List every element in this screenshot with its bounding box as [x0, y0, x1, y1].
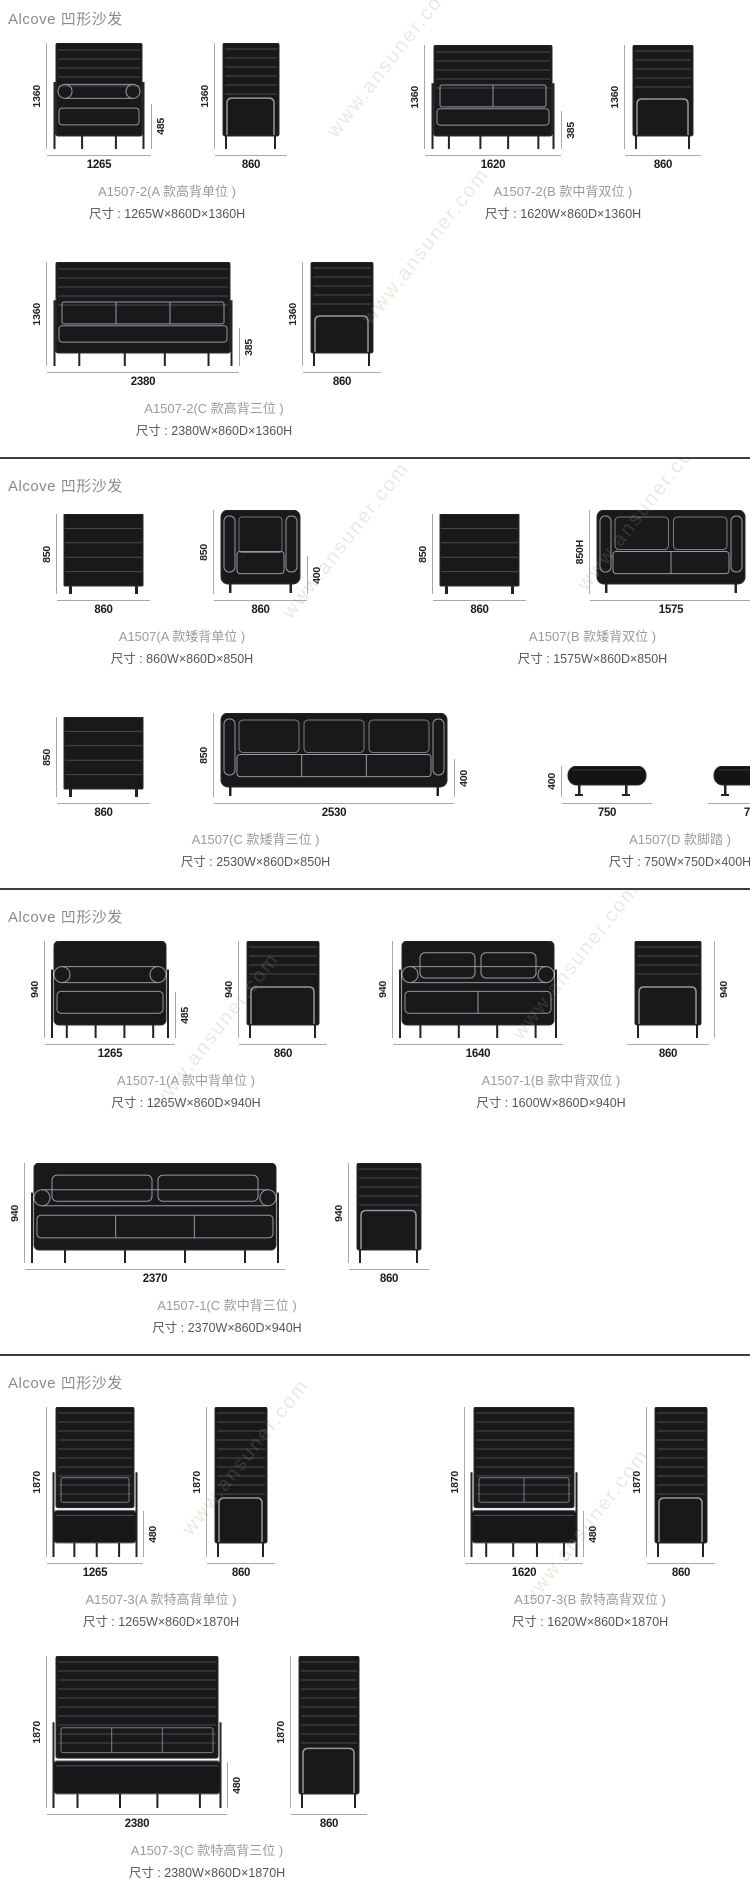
furniture-drawing [219, 713, 449, 797]
width-dimension-label: 860 [654, 159, 672, 171]
furniture-drawing [62, 514, 145, 594]
seat-height-dimension: 485 [151, 104, 167, 149]
dimension-line [227, 1762, 228, 1808]
sofa-side-view: 1360860 [604, 45, 722, 171]
sofa-side-view: 1360860 [194, 43, 308, 171]
figure-item: 400750750A1507(D 款脚踏 )尺寸 : 750W×750D×400… [541, 766, 750, 870]
section-title: Alcove 凹形沙发 [8, 475, 750, 496]
width-dimension-label: 860 [380, 1273, 398, 1285]
figure-row: 9402370940860A1507-1(C 款中背三位 )尺寸 : 2370W… [0, 1163, 750, 1336]
figure-item: 850860850860400A1507(A 款矮背单位 )尺寸 : 860W×… [36, 510, 328, 667]
furniture-drawing [220, 43, 282, 149]
figure-item: 8508608502530400A1507(C 款矮背三位 )尺寸 : 2530… [36, 713, 475, 870]
footstool-view: 400750 [541, 766, 673, 819]
model-size: 尺寸 : 2380W×860D×1360H [26, 420, 402, 439]
furniture-drawing [219, 510, 302, 594]
seat-height-dimension-label: 480 [587, 1526, 599, 1543]
sofa-front-view: 18701620480 [444, 1407, 604, 1579]
height-dimension: 940 [377, 941, 393, 1038]
figure-item: 9401265485940860A1507-1(A 款中背单位 )尺寸 : 12… [24, 941, 348, 1111]
model-size: 尺寸 : 1265W×860D×1870H [26, 1611, 296, 1630]
model-size: 尺寸 : 2380W×860D×1870H [26, 1862, 388, 1881]
figure-row: 850860850860400A1507(A 款矮背单位 )尺寸 : 860W×… [0, 510, 750, 667]
figure-item: 9401640860940A1507-1(B 款中背双位 )尺寸 : 1600W… [372, 941, 730, 1111]
furniture-drawing [52, 43, 146, 149]
height-dimension-label: 850 [41, 749, 53, 766]
sofa-back-view: 850860 [412, 514, 547, 616]
width-dimension-label: 860 [672, 1567, 690, 1579]
seat-height-dimension-label: 485 [179, 1007, 191, 1024]
height-dimension-label: 1870 [191, 1471, 203, 1494]
dimension-line [47, 155, 151, 156]
height-dimension: 940 [714, 941, 730, 1038]
width-dimension: 860 [215, 155, 287, 171]
sofa-back-view: 850860 [36, 717, 171, 819]
figure-row: 8508608502530400A1507(C 款矮背三位 )尺寸 : 2530… [0, 713, 750, 870]
furniture-drawing [632, 941, 704, 1038]
furniture-drawing [52, 262, 234, 366]
height-dimension: 940 [29, 941, 45, 1038]
height-dimension: 1360 [31, 43, 47, 149]
height-dimension-label: 940 [9, 1205, 21, 1222]
width-dimension: 2380 [47, 372, 239, 388]
sofa-front-view: 18702380480 [26, 1656, 248, 1830]
height-dimension-label: 1870 [31, 1471, 43, 1494]
model-name: A1507-2(C 款高背三位 ) [26, 398, 402, 417]
width-dimension-label: 2380 [125, 1818, 149, 1830]
width-dimension-label: 860 [659, 1048, 677, 1060]
figure-item: 136023803851360860A1507-2(C 款高背三位 )尺寸 : … [26, 262, 402, 439]
furniture-drawing [430, 45, 556, 149]
figure-row: 136012654851360860A1507-2(A 款高背单位 )尺寸 : … [0, 43, 750, 222]
height-dimension: 850 [198, 510, 214, 594]
sofa-front-view: 18701265480 [26, 1407, 164, 1579]
dimension-line [57, 803, 150, 804]
height-dimension-label: 1360 [199, 85, 211, 108]
height-dimension: 850 [41, 717, 57, 797]
figure-item: 187016204801870860A1507-3(B 款特高背双位 )尺寸 :… [444, 1407, 736, 1630]
width-dimension-label: 860 [470, 604, 488, 616]
furniture-drawing [595, 510, 747, 594]
height-dimension-label: 850 [417, 546, 429, 563]
dimension-line [454, 759, 455, 797]
dimension-line [214, 803, 454, 804]
figure-row: 136023803851360860A1507-2(C 款高背三位 )尺寸 : … [0, 262, 750, 439]
sofa-front-view: 9401265485 [24, 941, 196, 1060]
width-dimension: 860 [57, 600, 150, 616]
sofa-front-view: 9401640 [372, 941, 584, 1060]
furniture-drawing [52, 1656, 222, 1808]
seat-height-dimension: 385 [561, 111, 577, 149]
model-size: 尺寸 : 1265W×860D×940H [24, 1092, 348, 1111]
dimension-line [349, 1269, 429, 1270]
width-dimension: 1265 [47, 1563, 143, 1579]
seat-height-dimension-label: 400 [311, 567, 323, 584]
figure-row: 187012654801870860A1507-3(A 款特高背单位 )尺寸 :… [0, 1407, 750, 1630]
dimension-line [561, 111, 562, 149]
height-dimension-label: 940 [377, 981, 389, 998]
seat-height-dimension: 480 [583, 1511, 599, 1557]
width-dimension: 860 [627, 1044, 709, 1060]
height-dimension: 1360 [609, 45, 625, 149]
width-dimension: 860 [647, 1563, 715, 1579]
dimension-line [45, 1044, 175, 1045]
width-dimension: 860 [625, 155, 701, 171]
sofa-back-view: 850860 [36, 514, 171, 616]
furniture-drawing [62, 717, 145, 797]
dimension-line [393, 1044, 563, 1045]
height-dimension-label: 850 [198, 544, 210, 561]
width-dimension: 1640 [393, 1044, 563, 1060]
width-dimension: 860 [433, 600, 526, 616]
model-name: A1507-3(C 款特高背三位 ) [26, 1840, 388, 1859]
furniture-drawing [567, 766, 647, 797]
height-dimension: 1360 [287, 262, 303, 366]
width-dimension: 750 [708, 803, 750, 819]
width-dimension: 860 [239, 1044, 327, 1060]
sofa-side-view: 940860 [218, 941, 348, 1060]
dimension-line [465, 1563, 583, 1564]
width-dimension-label: 860 [94, 807, 112, 819]
sofa-front-view: 850860400 [193, 510, 328, 616]
width-dimension-label: 1620 [481, 159, 505, 171]
furniture-drawing [296, 1656, 362, 1808]
sofa-front-view: 13602380385 [26, 262, 260, 388]
width-dimension: 860 [349, 1269, 429, 1285]
width-dimension-label: 2530 [322, 807, 346, 819]
dimension-line [143, 1511, 144, 1557]
height-dimension: 400 [546, 766, 562, 797]
height-dimension-label: 1870 [631, 1471, 643, 1494]
section-title: Alcove 凹形沙发 [8, 906, 750, 927]
height-dimension: 1870 [191, 1407, 207, 1557]
model-name: A1507(C 款矮背三位 ) [36, 829, 475, 848]
model-size: 尺寸 : 2530W×860D×850H [36, 851, 475, 870]
dimension-line [425, 155, 561, 156]
height-dimension-label: 850H [574, 540, 586, 564]
figure-item: 187012654801870860A1507-3(A 款特高背单位 )尺寸 :… [26, 1407, 296, 1630]
seat-height-dimension: 385 [239, 328, 255, 366]
sofa-front-view: 13601265485 [26, 43, 172, 171]
seat-height-dimension-label: 480 [147, 1526, 159, 1543]
width-dimension-label: 860 [274, 1048, 292, 1060]
dimension-line [303, 372, 381, 373]
seat-height-dimension-label: 385 [565, 122, 577, 139]
height-dimension-label: 400 [546, 773, 558, 790]
seat-height-dimension-label: 385 [243, 339, 255, 356]
furniture-drawing [470, 1407, 578, 1557]
sofa-side-view: 1870860 [186, 1407, 296, 1579]
width-dimension-label: 860 [320, 1818, 338, 1830]
height-dimension: 1870 [631, 1407, 647, 1557]
furniture-drawing [308, 262, 376, 366]
model-name: A1507-3(A 款特高背单位 ) [26, 1589, 296, 1608]
dimension-line [47, 1563, 143, 1564]
furniture-drawing [713, 766, 750, 797]
width-dimension: 860 [207, 1563, 275, 1579]
height-dimension: 850 [417, 514, 433, 594]
spec-section: www.ansuner.comwww.ansuner.comAlcove 凹形沙… [0, 888, 750, 1354]
height-dimension: 1870 [31, 1656, 47, 1808]
width-dimension-label: 1265 [98, 1048, 122, 1060]
seat-height-dimension: 480 [227, 1762, 243, 1808]
model-name: A1507-1(A 款中背单位 ) [24, 1070, 348, 1089]
width-dimension-label: 860 [251, 604, 269, 616]
height-dimension: 1870 [275, 1656, 291, 1808]
width-dimension-label: 1265 [83, 1567, 107, 1579]
height-dimension-label: 1360 [31, 303, 43, 326]
height-dimension-label: 940 [223, 981, 235, 998]
figure-item: 9402370940860A1507-1(C 款中背三位 )尺寸 : 2370W… [4, 1163, 450, 1336]
height-dimension-label: 1360 [287, 303, 299, 326]
seat-height-dimension: 400 [307, 556, 323, 594]
seat-height-dimension-label: 485 [155, 118, 167, 135]
width-dimension: 1620 [425, 155, 561, 171]
height-dimension: 940 [223, 941, 239, 1038]
width-dimension-label: 2370 [143, 1273, 167, 1285]
model-size: 尺寸 : 750W×750D×400H [541, 851, 750, 870]
height-dimension: 850 [198, 713, 214, 797]
width-dimension-label: 860 [242, 159, 260, 171]
furniture-drawing [30, 1163, 280, 1263]
width-dimension-label: 750 [744, 807, 750, 819]
height-dimension: 940 [9, 1163, 25, 1263]
figure-row: 9401265485940860A1507-1(A 款中背单位 )尺寸 : 12… [0, 941, 750, 1111]
furniture-drawing [50, 941, 170, 1038]
dimension-line [207, 1563, 275, 1564]
height-dimension-label: 940 [718, 981, 730, 998]
model-size: 尺寸 : 860W×860D×850H [36, 648, 328, 667]
seat-height-dimension-label: 400 [458, 770, 470, 787]
height-dimension: 850 [41, 514, 57, 594]
width-dimension: 860 [303, 372, 381, 388]
figure-item: 850860850H1575400A1507(B 款矮背双位 )尺寸 : 157… [412, 510, 750, 667]
sofa-side-view: 940860 [328, 1163, 450, 1285]
width-dimension-label: 1265 [87, 159, 111, 171]
model-name: A1507-1(C 款中背三位 ) [4, 1295, 450, 1314]
height-dimension-label: 1870 [449, 1471, 461, 1494]
width-dimension: 860 [214, 600, 307, 616]
width-dimension-label: 860 [232, 1567, 250, 1579]
furniture-drawing [212, 1407, 270, 1557]
height-dimension-label: 850 [41, 546, 53, 563]
sofa-side-view: 1870860 [626, 1407, 736, 1579]
dimension-line [175, 992, 176, 1038]
dimension-line [239, 1044, 327, 1045]
height-dimension-label: 850 [198, 747, 210, 764]
height-dimension: 1360 [409, 45, 425, 149]
sofa-front-view: 850H1575400 [569, 510, 750, 616]
furniture-drawing [438, 514, 521, 594]
dimension-line [214, 600, 307, 601]
sofa-front-view: 8502530400 [193, 713, 475, 819]
model-name: A1507(A 款矮背单位 ) [36, 626, 328, 645]
height-dimension: 940 [333, 1163, 349, 1263]
furniture-drawing [630, 45, 696, 149]
model-name: A1507-1(B 款中背双位 ) [372, 1070, 730, 1089]
width-dimension-label: 1620 [512, 1567, 536, 1579]
seat-height-dimension: 400 [454, 759, 470, 797]
dimension-line [708, 803, 750, 804]
model-name: A1507-2(A 款高背单位 ) [26, 181, 308, 200]
dimension-line [151, 104, 152, 149]
height-dimension: 1360 [199, 43, 215, 149]
width-dimension: 1620 [465, 1563, 583, 1579]
model-size: 尺寸 : 1620W×860D×1870H [444, 1611, 736, 1630]
width-dimension: 2530 [214, 803, 454, 819]
model-name: A1507-3(B 款特高背双位 ) [444, 1589, 736, 1608]
dimension-line [47, 1814, 227, 1815]
section-title: Alcove 凹形沙发 [8, 1372, 750, 1393]
height-dimension-label: 1870 [31, 1721, 43, 1744]
dimension-line [57, 600, 150, 601]
width-dimension: 2380 [47, 1814, 227, 1830]
sofa-side-view: 860940 [606, 941, 730, 1060]
sofa-side-view: 1870860 [270, 1656, 388, 1830]
figure-item: 136016203851360860A1507-2(B 款中背双位 )尺寸 : … [404, 45, 722, 222]
model-name: A1507-2(B 款中背双位 ) [404, 181, 722, 200]
model-name: A1507(B 款矮背双位 ) [412, 626, 750, 645]
furniture-drawing [652, 1407, 710, 1557]
height-dimension-label: 1360 [609, 86, 621, 109]
dimension-line [590, 600, 750, 601]
figure-item: 136012654851360860A1507-2(A 款高背单位 )尺寸 : … [26, 43, 308, 222]
model-size: 尺寸 : 1575W×860D×850H [412, 648, 750, 667]
width-dimension-label: 2380 [131, 376, 155, 388]
dimension-line [647, 1563, 715, 1564]
furniture-drawing [398, 941, 558, 1038]
dimension-line [433, 600, 526, 601]
width-dimension-label: 750 [598, 807, 616, 819]
width-dimension: 1575 [590, 600, 750, 616]
dimension-line [714, 941, 715, 1038]
dimension-line [583, 1511, 584, 1557]
figure-row: 187023804801870860A1507-3(C 款特高背三位 )尺寸 :… [0, 1656, 750, 1881]
height-dimension: 1870 [449, 1407, 465, 1557]
height-dimension-label: 1870 [275, 1721, 287, 1744]
seat-height-dimension: 485 [175, 992, 191, 1038]
furniture-drawing [52, 1407, 138, 1557]
width-dimension: 1265 [47, 155, 151, 171]
width-dimension: 860 [291, 1814, 367, 1830]
model-size: 尺寸 : 1620W×860D×1360H [404, 203, 722, 222]
width-dimension: 1265 [45, 1044, 175, 1060]
seat-height-dimension-label: 480 [231, 1777, 243, 1794]
dimension-line [562, 803, 652, 804]
dimension-line [47, 372, 239, 373]
height-dimension: 850H [574, 510, 590, 594]
furniture-drawing [354, 1163, 424, 1263]
model-size: 尺寸 : 2370W×860D×940H [4, 1317, 450, 1336]
width-dimension-label: 860 [94, 604, 112, 616]
width-dimension: 750 [562, 803, 652, 819]
section-title: Alcove 凹形沙发 [8, 8, 750, 29]
dimension-line [307, 556, 308, 594]
seat-height-dimension: 480 [143, 1511, 159, 1557]
height-dimension: 1360 [31, 262, 47, 366]
height-dimension-label: 940 [333, 1205, 345, 1222]
width-dimension-label: 860 [333, 376, 351, 388]
dimension-line [239, 328, 240, 366]
dimension-line [291, 1814, 367, 1815]
height-dimension-label: 1360 [409, 86, 421, 109]
sofa-side-view: 1360860 [282, 262, 402, 388]
footstool-view: 750 [687, 766, 750, 819]
width-dimension-label: 1575 [659, 604, 683, 616]
height-dimension: 1870 [31, 1407, 47, 1557]
height-dimension-label: 1360 [31, 85, 43, 108]
spec-section: www.ansuner.comwww.ansuner.comAlcove 凹形沙… [0, 457, 750, 888]
model-size: 尺寸 : 1265W×860D×1360H [26, 203, 308, 222]
figure-item: 187023804801870860A1507-3(C 款特高背三位 )尺寸 :… [26, 1656, 388, 1881]
sofa-front-view: 13601620385 [404, 45, 582, 171]
model-name: A1507(D 款脚踏 ) [541, 829, 750, 848]
dimension-line [25, 1269, 285, 1270]
furniture-drawing [244, 941, 322, 1038]
dimension-line [625, 155, 701, 156]
width-dimension-label: 1640 [466, 1048, 490, 1060]
model-size: 尺寸 : 1600W×860D×940H [372, 1092, 730, 1111]
width-dimension: 2370 [25, 1269, 285, 1285]
sofa-front-view: 9402370 [4, 1163, 306, 1285]
dimension-line [627, 1044, 709, 1045]
dimension-line [215, 155, 287, 156]
height-dimension-label: 940 [29, 981, 41, 998]
spec-section: www.ansuner.comwww.ansuner.comAlcove 凹形沙… [0, 0, 750, 457]
spec-sheet: www.ansuner.comwww.ansuner.comAlcove 凹形沙… [0, 0, 750, 1899]
spec-section: www.ansuner.comwww.ansuner.comAlcove 凹形沙… [0, 1354, 750, 1899]
width-dimension: 860 [57, 803, 150, 819]
